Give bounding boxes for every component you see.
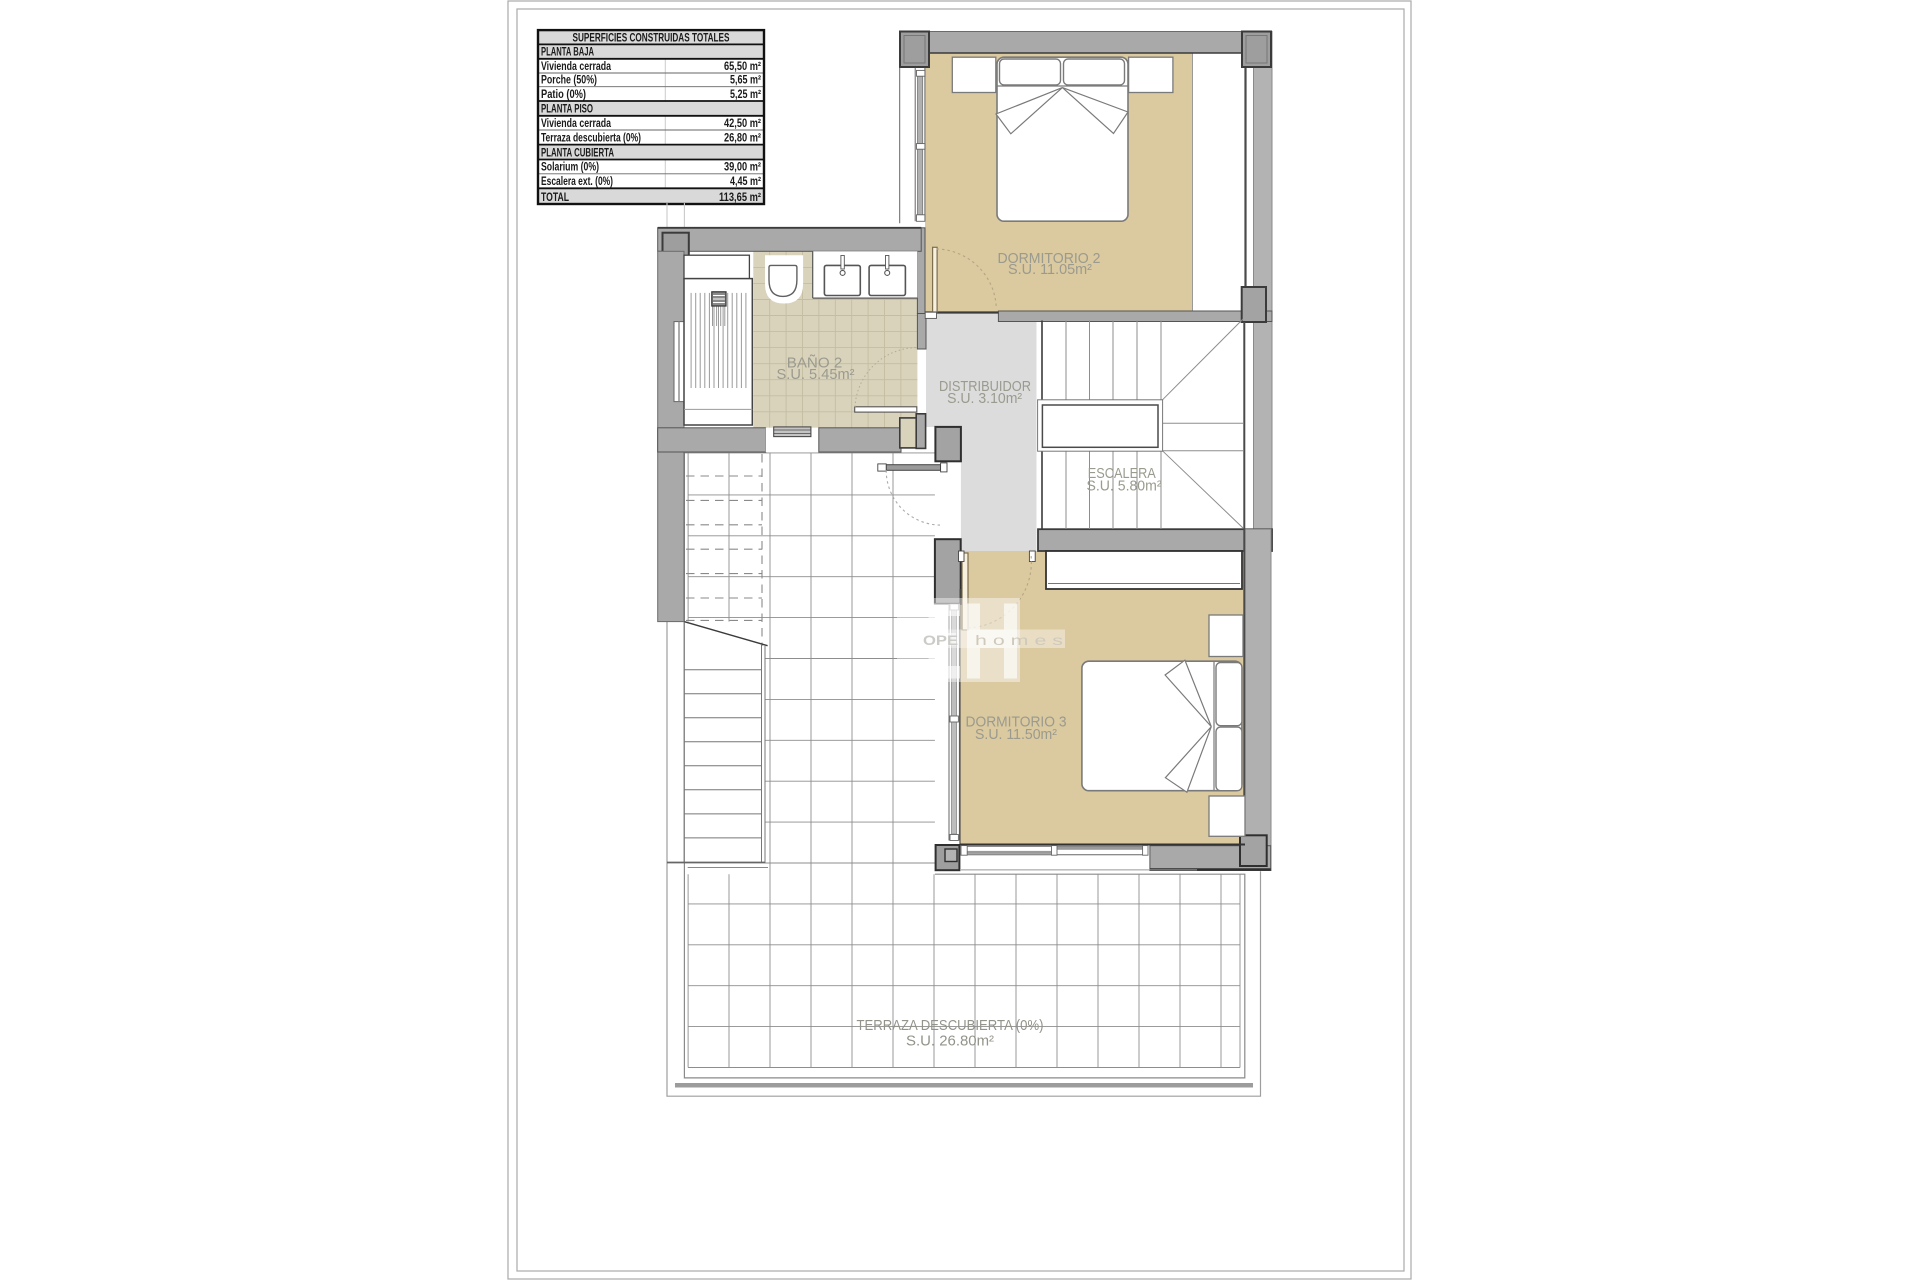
svg-text:39,00 m²: 39,00 m² <box>724 160 761 174</box>
svg-text:S.U. 5.45m²: S.U. 5.45m² <box>777 367 855 383</box>
svg-text:PLANTA BAJA: PLANTA BAJA <box>541 45 594 59</box>
svg-text:26,80 m²: 26,80 m² <box>724 130 761 144</box>
svg-text:Vivienda cerrada: Vivienda cerrada <box>541 59 611 73</box>
svg-text:5,65 m²: 5,65 m² <box>730 73 761 87</box>
svg-text:SUPERFICIES CONSTRUIDAS TOTALE: SUPERFICIES CONSTRUIDAS TOTALES <box>573 32 730 44</box>
svg-text:S.U. 11.50m²: S.U. 11.50m² <box>975 727 1057 743</box>
svg-text:5,25 m²: 5,25 m² <box>730 87 761 101</box>
svg-text:S.U. 11.05m²: S.U. 11.05m² <box>1008 262 1092 278</box>
svg-text:S.U. 3.10m²: S.U. 3.10m² <box>947 391 1022 407</box>
svg-text:PLANTA CUBIERTA: PLANTA CUBIERTA <box>541 145 614 159</box>
svg-text:Terraza descubierta (0%): Terraza descubierta (0%) <box>541 130 641 144</box>
svg-text:4,45 m²: 4,45 m² <box>730 174 761 188</box>
svg-text:S.U. 26.80m²: S.U. 26.80m² <box>906 1034 994 1050</box>
svg-text:TOTAL: TOTAL <box>541 190 569 204</box>
svg-text:113,65 m²: 113,65 m² <box>719 190 761 204</box>
svg-text:Porche (50%): Porche (50%) <box>541 73 597 87</box>
svg-text:Patio (0%): Patio (0%) <box>541 87 586 101</box>
svg-text:TERRAZA DESCUBIERTA (0%): TERRAZA DESCUBIERTA (0%) <box>857 1017 1044 1034</box>
svg-text:h o m e s: h o m e s <box>975 633 1063 648</box>
svg-text:PLANTA PISO: PLANTA PISO <box>541 102 593 116</box>
svg-text:S.U. 5.80m²: S.U. 5.80m² <box>1087 478 1162 494</box>
svg-text:OPE: OPE <box>923 633 958 648</box>
svg-text:65,50 m²: 65,50 m² <box>724 59 761 73</box>
svg-text:Solarium (0%): Solarium (0%) <box>541 160 599 174</box>
svg-text:42,50 m²: 42,50 m² <box>724 116 761 130</box>
svg-text:Escalera ext. (0%): Escalera ext. (0%) <box>541 174 613 188</box>
svg-text:Vivienda cerrada: Vivienda cerrada <box>541 116 611 130</box>
